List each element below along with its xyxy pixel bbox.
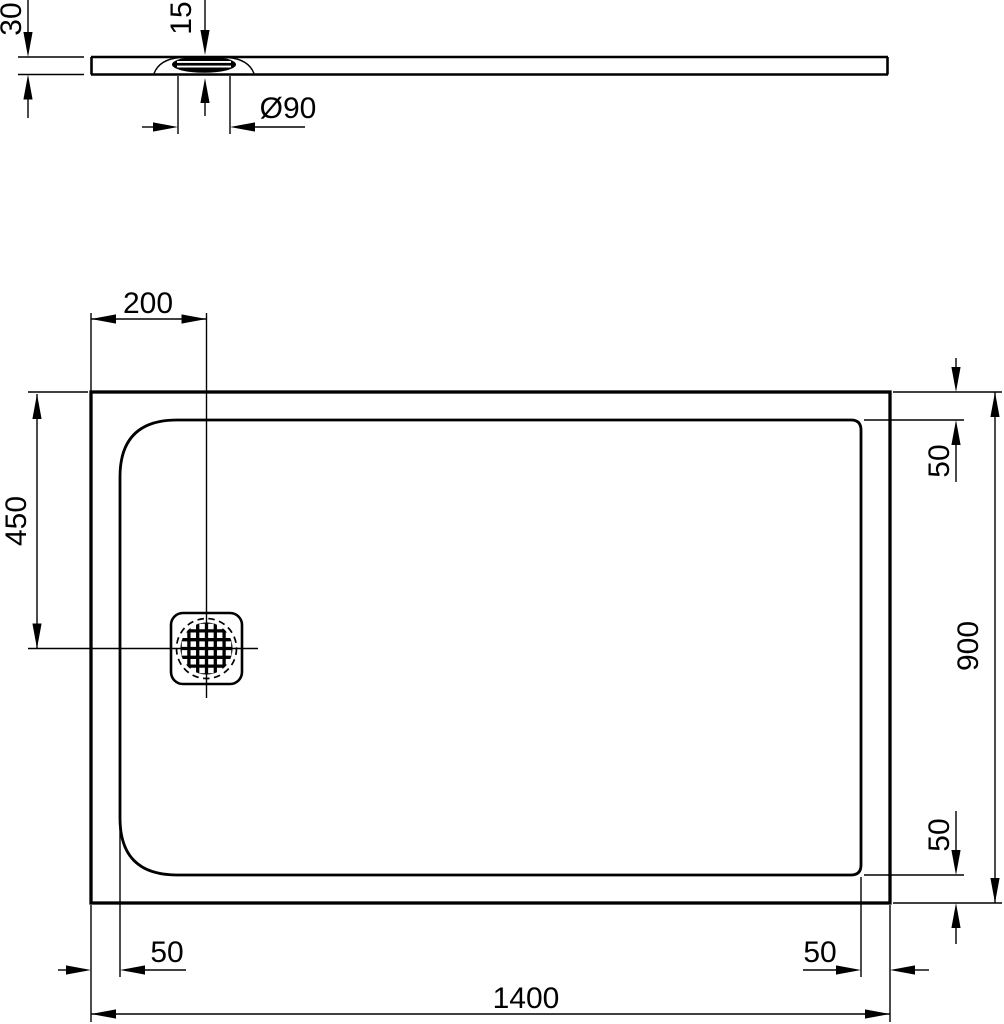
dim-drain-diameter-label: Ø90 — [260, 92, 317, 125]
dim-left-edge-inset: 50 — [58, 822, 186, 1022]
arrowhead-down — [200, 30, 209, 55]
dim-left-edge-inset-label: 50 — [150, 936, 183, 969]
arrowhead-left — [91, 314, 116, 323]
dim-drain-height-label: 15 — [165, 1, 198, 34]
dim-overall-depth: 900 — [952, 392, 1000, 903]
arrowhead-left — [91, 1009, 116, 1018]
technical-drawing-canvas: 30 15 Ø90 — [0, 0, 1004, 1024]
dim-drain-offset-y-label: 450 — [0, 496, 33, 546]
dim-drain-offset-y: 450 — [0, 392, 88, 649]
arrowhead-left — [120, 965, 145, 974]
dim-right-edge-inset-label: 50 — [803, 936, 836, 969]
shower-tray-drawing: 30 15 Ø90 — [0, 0, 1004, 1024]
arrowhead-up — [32, 394, 41, 419]
dim-top-edge-inset-label: 50 — [923, 444, 956, 477]
side-view: 30 15 Ø90 — [0, 0, 888, 134]
dim-drain-offset-x-label: 200 — [123, 287, 173, 320]
arrowhead-right — [836, 965, 861, 974]
arrowhead-right — [66, 965, 91, 974]
arrowhead-right — [865, 1009, 890, 1018]
dim-drain-offset-x: 200 — [91, 287, 207, 392]
dim-thickness-label: 30 — [0, 2, 28, 35]
dim-drain-diameter: Ø90 — [142, 76, 316, 134]
arrowhead-down — [990, 878, 999, 903]
dim-bottom-edge-inset: 50 — [864, 811, 1002, 944]
drain-cap-section — [172, 56, 236, 73]
arrowhead-up — [23, 75, 32, 100]
drain-cap-groove-1 — [177, 61, 231, 63]
drain-dome-section — [154, 56, 254, 73]
drain-cap-groove-2 — [177, 66, 231, 68]
arrowhead-left — [230, 122, 255, 131]
plan-view: 200 450 50 900 — [0, 287, 1002, 1022]
dim-overall-width: 1400 — [91, 982, 890, 1019]
arrowhead-down — [951, 367, 960, 392]
arrowhead-up — [200, 78, 209, 103]
arrowhead-right — [182, 314, 207, 323]
dim-thickness: 30 — [0, 0, 84, 118]
arrowhead-left — [890, 965, 915, 974]
dim-right-edge-inset: 50 — [803, 877, 929, 1022]
dim-overall-width-label: 1400 — [493, 982, 560, 1015]
dim-overall-depth-label: 900 — [952, 621, 985, 671]
arrowhead-up — [990, 392, 999, 417]
dim-bottom-edge-inset-label: 50 — [923, 818, 956, 851]
drain-plan — [28, 313, 258, 698]
arrowhead-up — [951, 420, 960, 445]
arrowhead-down — [951, 850, 960, 875]
arrowhead-down — [32, 624, 41, 649]
arrowhead-right — [153, 122, 178, 131]
arrowhead-up — [951, 903, 960, 928]
dim-top-edge-inset: 50 — [864, 358, 1002, 482]
